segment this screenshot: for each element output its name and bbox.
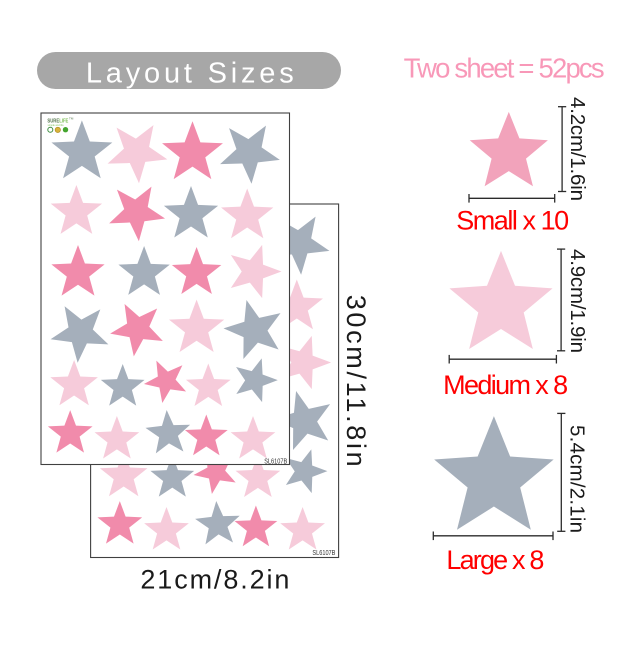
svg-text:Two sheet = 52pcs: Two sheet = 52pcs (404, 53, 605, 84)
svg-text:4.9cm/1.9in: 4.9cm/1.9in (566, 249, 589, 353)
svg-text:Large x 8: Large x 8 (446, 545, 544, 575)
svg-text:Layout Sizes: Layout Sizes (86, 58, 298, 90)
svg-text:simple and life: simple and life (48, 123, 64, 127)
svg-text:5.4cm/2.1in: 5.4cm/2.1in (566, 425, 589, 533)
svg-text:SL6107B: SL6107B (264, 456, 287, 465)
svg-text:SL6107B: SL6107B (312, 548, 335, 557)
svg-text:21cm/8.2in: 21cm/8.2in (140, 565, 289, 595)
svg-text:Medium x 8: Medium x 8 (443, 370, 568, 400)
svg-text:4.2cm/1.6in: 4.2cm/1.6in (566, 97, 589, 201)
svg-text:Small x 10: Small x 10 (456, 206, 569, 236)
svg-text:TM: TM (69, 117, 74, 121)
